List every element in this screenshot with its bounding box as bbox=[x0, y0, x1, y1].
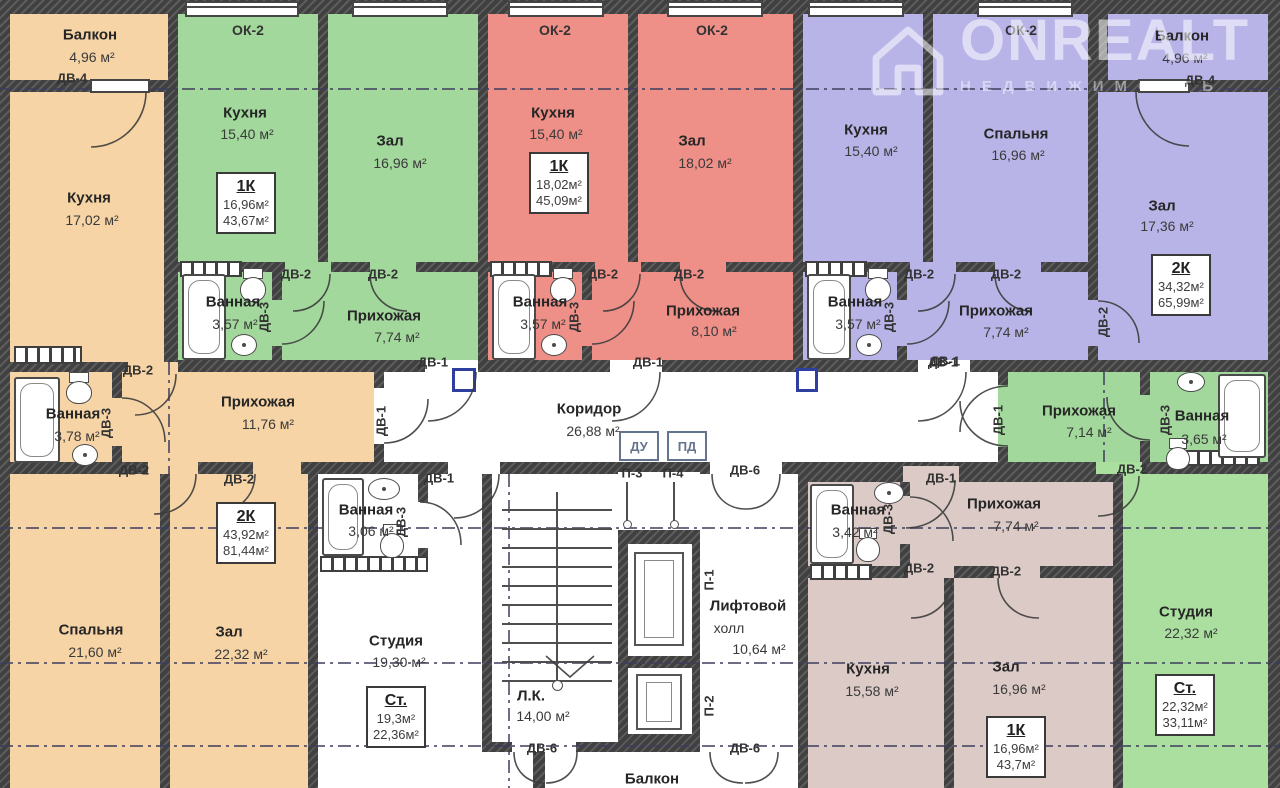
room-area: 4,96 м² bbox=[1162, 50, 1207, 66]
room-label: Прихожая bbox=[221, 394, 295, 411]
room-label: Л.К. bbox=[517, 688, 545, 705]
room-label: холл bbox=[714, 620, 745, 636]
door-opening bbox=[148, 462, 198, 474]
room-area: 7,74 м² bbox=[983, 324, 1028, 340]
room-area: 16,96 м² bbox=[991, 147, 1044, 163]
door-label-dv6: ДВ-6 bbox=[730, 463, 760, 478]
tag-type: 1К bbox=[536, 157, 582, 177]
tag-living-area: 16,96м² bbox=[223, 197, 269, 213]
room-label: Коридор bbox=[557, 401, 622, 418]
riser-pipe bbox=[673, 482, 675, 524]
door-label-dv2: ДВ-2 bbox=[904, 267, 934, 282]
window-label-ok2: ОК-2 bbox=[232, 22, 264, 38]
riser-pipe-dot bbox=[623, 520, 632, 529]
door-label-dv3: ДВ-3 bbox=[394, 507, 409, 537]
room-label: Кухня bbox=[846, 661, 890, 678]
tag-type: 2К bbox=[1158, 259, 1204, 279]
apartment-tag-purple: 2К 34,32м² 65,99м² bbox=[1151, 254, 1211, 316]
tag-living-area: 34,32м² bbox=[1158, 279, 1204, 295]
lift-label-p1: П-1 bbox=[702, 570, 717, 591]
room-area: 15,58 м² bbox=[845, 683, 898, 699]
room-area: 18,02 м² bbox=[678, 155, 731, 171]
room-label: Кухня bbox=[844, 122, 888, 139]
door-label-dv1: ДВ-1 bbox=[930, 354, 960, 369]
door-label-dv2: ДВ-2 bbox=[368, 267, 398, 282]
balcony-door-sill bbox=[90, 79, 150, 93]
room-label: Ванная bbox=[513, 294, 567, 311]
room-label: Ванная bbox=[206, 294, 260, 311]
balcony-door-sill bbox=[1138, 79, 1190, 93]
room-label: Ванная bbox=[831, 502, 885, 519]
plan-walls: ДВ-4 ДВ-4 ОК-2 ОК-2 ОК-2 ОК-2 ДВ-2 ДВ-2 … bbox=[0, 0, 1280, 788]
room-area: 7,74 м² bbox=[993, 518, 1038, 534]
window-label-ok2: ОК-2 bbox=[539, 22, 571, 38]
axis-line bbox=[0, 88, 1280, 90]
tile-counter bbox=[14, 346, 82, 364]
door-label-dv2: ДВ-2 bbox=[1096, 307, 1111, 337]
door-label-dv2: ДВ-2 bbox=[123, 363, 153, 378]
door-label-dv2: ДВ-2 bbox=[588, 267, 618, 282]
tag-total-area: 81,44м² bbox=[223, 543, 269, 559]
door-label-dv3: ДВ-3 bbox=[881, 504, 896, 534]
room-label: Прихожая bbox=[1042, 403, 1116, 420]
door-label-dv2: ДВ-2 bbox=[281, 267, 311, 282]
room-area: 22,32 м² bbox=[214, 646, 267, 662]
floor-plan: ДВ-4 ДВ-4 ОК-2 ОК-2 ОК-2 ОК-2 ДВ-2 ДВ-2 … bbox=[0, 0, 1280, 788]
room-label: Прихожая bbox=[959, 303, 1033, 320]
room-balcony-right bbox=[1108, 14, 1268, 80]
tag-total-area: 43,7м² bbox=[993, 757, 1039, 773]
door-opening bbox=[448, 462, 500, 474]
window bbox=[808, 1, 904, 17]
door-label-dv4: ДВ-4 bbox=[57, 71, 87, 86]
door-opening bbox=[418, 502, 428, 548]
room-hall-red bbox=[638, 14, 793, 262]
tag-living-area: 43,92м² bbox=[223, 527, 269, 543]
room-area: 17,02 м² bbox=[65, 212, 118, 228]
room-area: 3,57 м² bbox=[520, 316, 565, 332]
room-label: Зал bbox=[1148, 198, 1175, 215]
sink bbox=[856, 334, 882, 356]
tag-total-area: 33,11м² bbox=[1162, 715, 1208, 731]
apartment-tag-red: 1К 18,02м² 45,09м² bbox=[529, 152, 589, 214]
room-label: Ванная bbox=[46, 406, 100, 423]
axis-line bbox=[168, 362, 170, 474]
door-label-dv2: ДВ-2 bbox=[991, 267, 1021, 282]
tag-total-area: 43,67м² bbox=[223, 213, 269, 229]
tile-counter bbox=[810, 564, 872, 580]
room-area: 15,40 м² bbox=[529, 126, 582, 142]
door-label-dv2: ДВ-2 bbox=[904, 561, 934, 576]
apartment-tag-green: 1К 16,96м² 43,67м² bbox=[216, 172, 276, 234]
room-label: Лифтовой bbox=[710, 598, 786, 615]
tag-type: Ст. bbox=[1162, 679, 1208, 699]
room-area: 14,00 м² bbox=[516, 708, 569, 724]
room-label: Кухня bbox=[531, 105, 575, 122]
door-opening bbox=[897, 300, 907, 346]
room-label: Зал bbox=[992, 659, 1019, 676]
electrical-panel bbox=[796, 368, 818, 392]
room-label: Зал bbox=[376, 133, 403, 150]
room-label: Ванная bbox=[339, 502, 393, 519]
room-area: 15,40 м² bbox=[844, 143, 897, 159]
room-area: 19,30 м² bbox=[372, 654, 425, 670]
sink bbox=[72, 444, 98, 466]
riser-pipe-dot bbox=[670, 520, 679, 529]
toilet bbox=[66, 372, 92, 404]
room-area: 17,36 м² bbox=[1140, 218, 1193, 234]
tag-living-area: 16,96м² bbox=[993, 741, 1039, 757]
door-label-dv1: ДВ-1 bbox=[633, 355, 663, 370]
tag-type: 1К bbox=[993, 721, 1039, 741]
room-label: Балкон bbox=[1155, 28, 1209, 45]
tag-total-area: 65,99м² bbox=[1158, 295, 1204, 311]
door-label-dv2: ДВ-2 bbox=[119, 463, 149, 478]
door-opening bbox=[253, 462, 301, 474]
room-label: Прихожая bbox=[666, 303, 740, 320]
room-area: 21,60 м² bbox=[68, 644, 121, 660]
door-opening bbox=[900, 496, 910, 544]
room-area: 10,64 м² bbox=[732, 641, 785, 657]
axis-line bbox=[0, 745, 1280, 747]
tag-type: 2К bbox=[223, 507, 269, 527]
window bbox=[667, 1, 763, 17]
room-label: Спальня bbox=[984, 126, 1049, 143]
tag-type: Ст. bbox=[373, 691, 419, 711]
room-label: Кухня bbox=[67, 190, 111, 207]
room-area: 3,57 м² bbox=[835, 316, 880, 332]
lift-car bbox=[634, 552, 684, 646]
door-label-dv1: ДВ-1 bbox=[424, 471, 454, 486]
stairs-rail bbox=[556, 492, 558, 684]
apartment-tag-brown: 1К 16,96м² 43,7м² bbox=[986, 716, 1046, 778]
room-area: 16,96 м² bbox=[992, 681, 1045, 697]
door-label-dv1: ДВ-1 bbox=[991, 405, 1006, 435]
door-label-dv2: ДВ-2 bbox=[674, 267, 704, 282]
door-label-dv2: ДВ-2 bbox=[991, 564, 1021, 579]
room-area: 3,65 м² bbox=[1181, 431, 1226, 447]
room-area: 4,96 м² bbox=[69, 49, 114, 65]
door-label-dv4: ДВ-4 bbox=[1185, 73, 1215, 88]
door-label-dv6: ДВ-6 bbox=[730, 741, 760, 756]
room-area: 8,10 м² bbox=[691, 323, 736, 339]
door-label-dv3: ДВ-3 bbox=[882, 302, 897, 332]
tag-total-area: 22,36м² bbox=[373, 727, 419, 743]
room-label: Балкон bbox=[63, 27, 117, 44]
door-label-dv6: ДВ-6 bbox=[527, 741, 557, 756]
room-label: Ванная bbox=[1175, 408, 1229, 425]
room-label: Прихожая bbox=[347, 308, 421, 325]
room-label: Студия bbox=[1159, 604, 1213, 621]
door-label-dv2: ДВ-2 bbox=[224, 472, 254, 487]
door-opening bbox=[272, 300, 282, 346]
sink bbox=[541, 334, 567, 356]
room-label: Зал bbox=[215, 624, 242, 641]
room-label: Студия bbox=[369, 633, 423, 650]
axis-line bbox=[0, 527, 1280, 529]
door-label-dv3: ДВ-3 bbox=[257, 302, 272, 332]
room-label: Балкон bbox=[625, 771, 679, 788]
lift-label-p2: П-2 bbox=[702, 696, 717, 717]
axis-line bbox=[0, 662, 1280, 664]
door-label-dv1: ДВ-1 bbox=[926, 471, 956, 486]
room-area: 3,78 м² bbox=[54, 428, 99, 444]
room-area: 22,32 м² bbox=[1164, 625, 1217, 641]
sink bbox=[1177, 372, 1205, 392]
window bbox=[185, 1, 299, 17]
room-area: 3,06 м² bbox=[348, 523, 393, 539]
room-area: 11,76 м² bbox=[242, 416, 294, 432]
window-label-ok2: ОК-2 bbox=[1005, 22, 1037, 38]
tag-living-area: 22,32м² bbox=[1162, 699, 1208, 715]
room-area: 7,14 м² bbox=[1066, 424, 1111, 440]
apartment-tag-studio-left: Ст. 19,3м² 22,36м² bbox=[366, 686, 426, 748]
riser-label-p4: П-4 bbox=[663, 466, 684, 481]
tag-total-area: 45,09м² bbox=[536, 193, 582, 209]
sink bbox=[231, 334, 257, 356]
door-opening bbox=[1140, 395, 1150, 441]
room-balcony-left bbox=[10, 14, 168, 80]
door-label-dv3: ДВ-3 bbox=[99, 408, 114, 438]
sink bbox=[368, 478, 400, 500]
tag-living-area: 18,02м² bbox=[536, 177, 582, 193]
door-label-dv1: ДВ-1 bbox=[374, 406, 389, 436]
apartment-tag-left: 2К 43,92м² 81,44м² bbox=[216, 502, 276, 564]
tag-type: 1К bbox=[223, 177, 269, 197]
window bbox=[508, 1, 604, 17]
room-area: 3,57 м² bbox=[212, 316, 257, 332]
door-label-dv1: ДВ-1 bbox=[418, 355, 448, 370]
door-label-dv3: ДВ-3 bbox=[567, 302, 582, 332]
riser-pipe bbox=[626, 482, 628, 524]
electrical-panel bbox=[452, 368, 476, 392]
tile-counter bbox=[320, 556, 428, 572]
door-opening bbox=[582, 300, 592, 346]
room-area: 26,88 м² bbox=[566, 423, 619, 439]
door-label-dv3: ДВ-3 bbox=[1158, 405, 1173, 435]
door-opening bbox=[112, 398, 122, 446]
fire-alarm-box: ПД bbox=[667, 431, 707, 461]
room-label: Кухня bbox=[223, 105, 267, 122]
room-area: 15,40 м² bbox=[220, 126, 273, 142]
door-label-dv2: ДВ-2 bbox=[1117, 462, 1147, 477]
room-label: Зал bbox=[678, 133, 705, 150]
room-label: Ванная bbox=[828, 294, 882, 311]
room-label: Прихожая bbox=[967, 496, 1041, 513]
tag-living-area: 19,3м² bbox=[373, 711, 419, 727]
stairs-post bbox=[552, 680, 563, 691]
smoke-control-box: ДУ bbox=[619, 431, 659, 461]
window-label-ok2: ОК-2 bbox=[696, 22, 728, 38]
room-area: 3,42 м² bbox=[832, 524, 877, 540]
room-area: 16,96 м² bbox=[373, 155, 426, 171]
window bbox=[977, 1, 1073, 17]
apartment-tag-studio-right: Ст. 22,32м² 33,11м² bbox=[1155, 674, 1215, 736]
riser-label-p3: П-3 bbox=[622, 466, 643, 481]
lift-car bbox=[636, 674, 682, 730]
room-label: Спальня bbox=[59, 622, 124, 639]
room-area: 7,74 м² bbox=[374, 329, 419, 345]
window bbox=[352, 1, 448, 17]
